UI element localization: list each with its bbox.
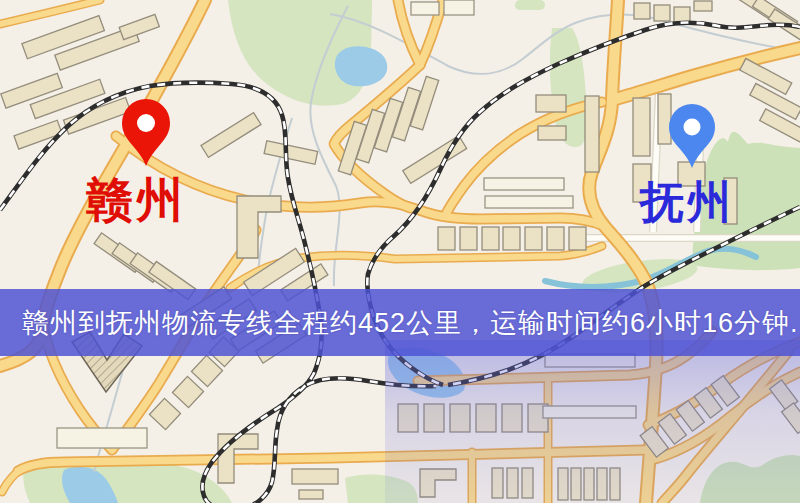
destination-label: 抚州 (638, 176, 734, 227)
route-info-banner: 赣州到抚州物流专线全程约452公里，运输时间约6小时16分钟. (0, 289, 800, 356)
origin-label: 赣州 (86, 172, 186, 227)
haze-overlay (385, 340, 800, 503)
map-canvas[interactable]: 赣州 抚州 (0, 0, 800, 503)
route-info-text: 赣州到抚州物流专线全程约452公里，运输时间约6小时16分钟. (22, 305, 799, 341)
map-view: 赣州 抚州 赣州到抚州物流专线全程约452公里，运输时间约6小时16分钟. (0, 0, 800, 503)
